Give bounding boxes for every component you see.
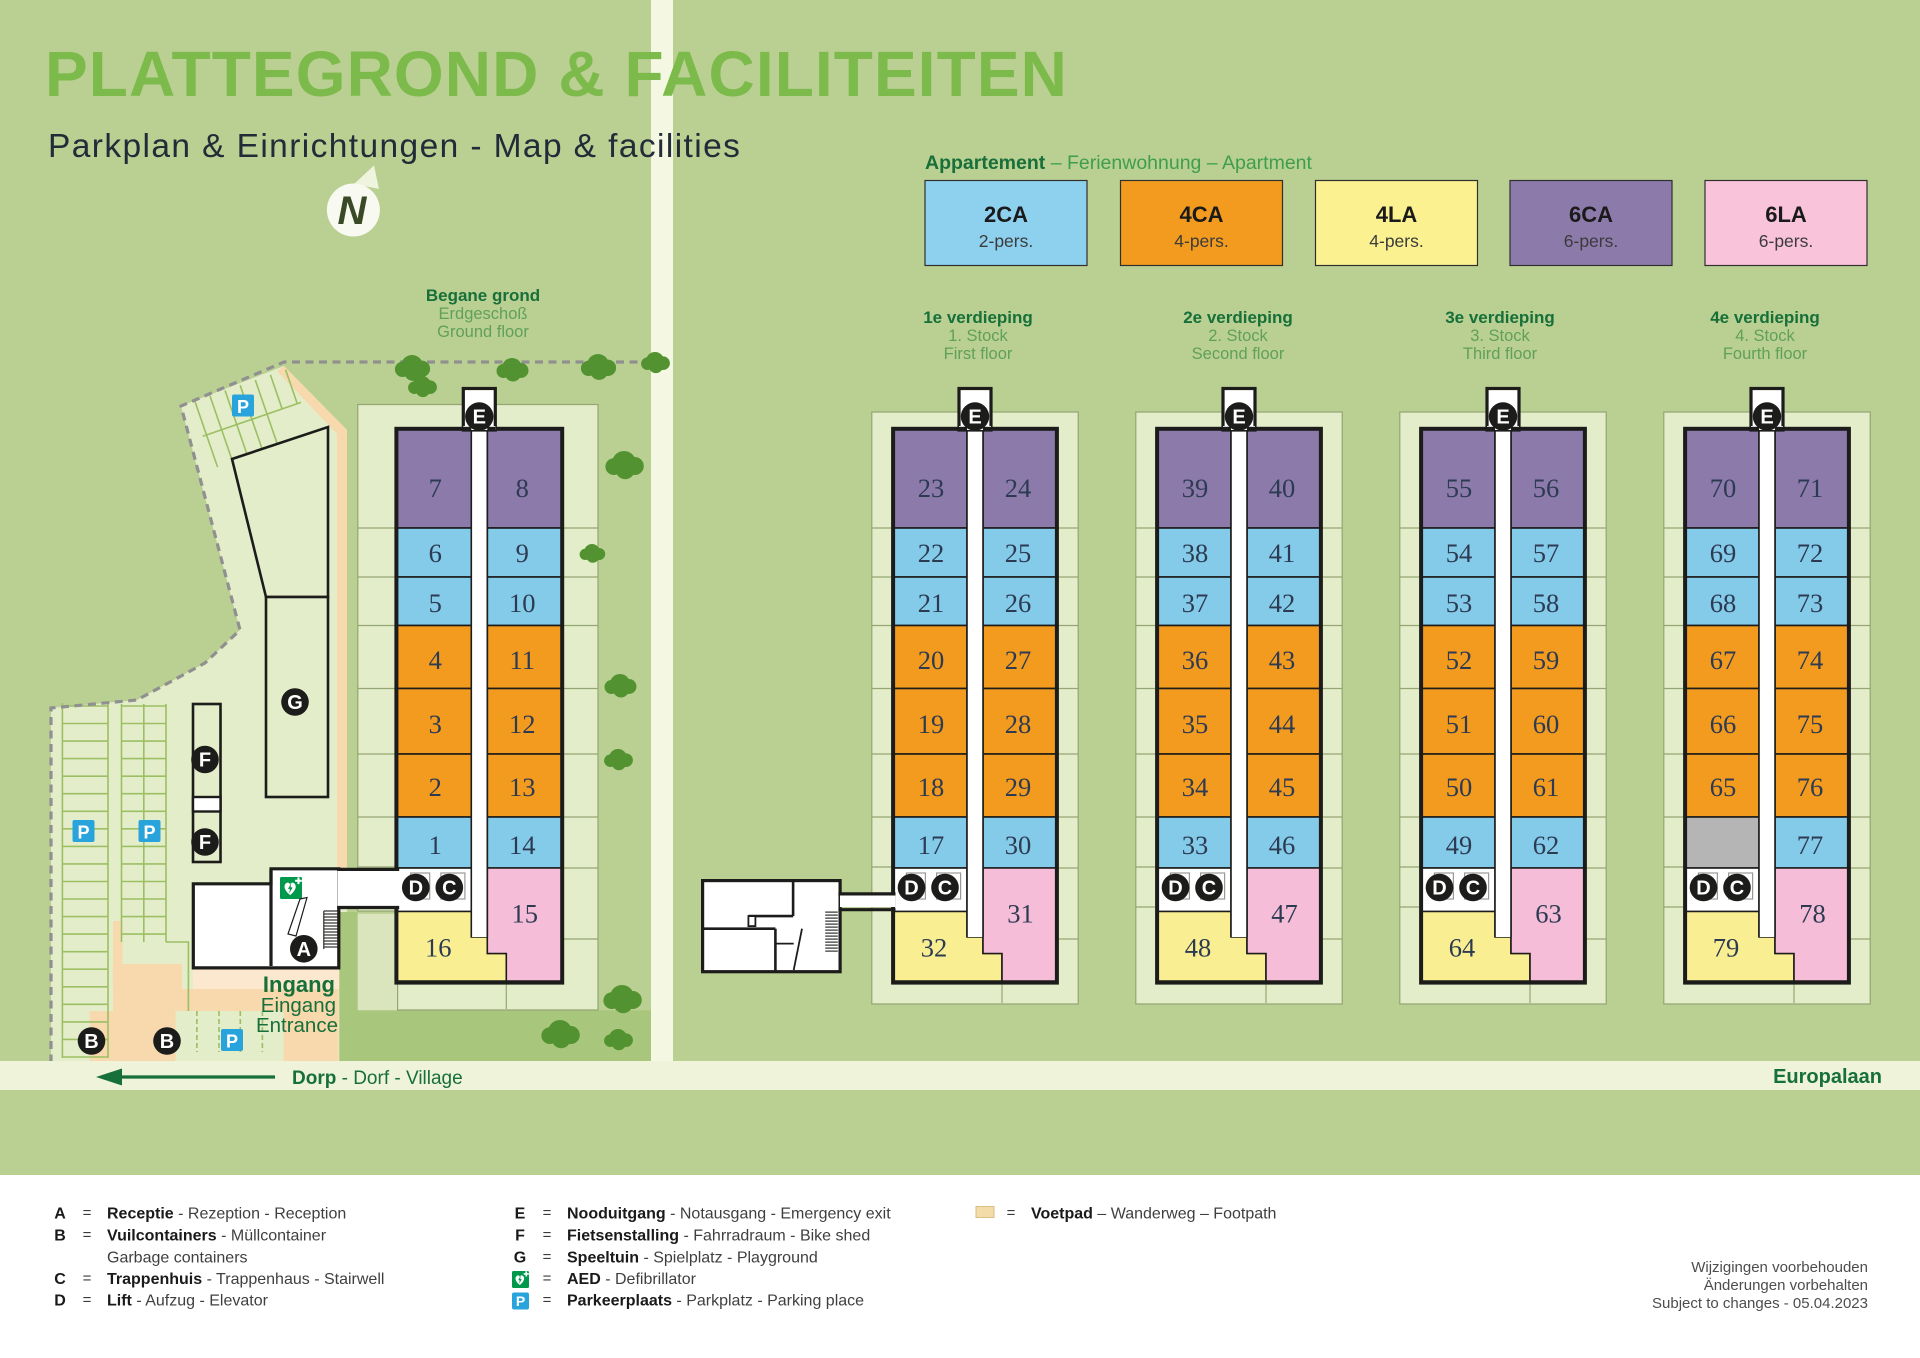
svg-text:3e verdieping: 3e verdieping (1445, 308, 1555, 327)
svg-text:Garbage containers: Garbage containers (107, 1250, 248, 1267)
svg-text:C: C (1730, 878, 1744, 900)
svg-text:75: 75 (1797, 709, 1824, 739)
svg-text:A: A (54, 1206, 66, 1223)
svg-text:E: E (1760, 407, 1773, 429)
svg-text:37: 37 (1182, 588, 1209, 618)
svg-text:47: 47 (1271, 899, 1298, 929)
svg-text:3: 3 (429, 709, 442, 739)
svg-text:Änderungen vorbehalten: Änderungen vorbehalten (1704, 1277, 1868, 1294)
svg-text:32: 32 (921, 933, 948, 963)
svg-text:2e verdieping: 2e verdieping (1183, 308, 1293, 327)
svg-text:2: 2 (429, 772, 442, 802)
svg-text:E: E (1496, 407, 1509, 429)
svg-text:G: G (514, 1250, 526, 1267)
svg-text:=: = (83, 1292, 92, 1309)
svg-text:P: P (516, 1293, 525, 1309)
svg-text:9: 9 (516, 538, 529, 568)
svg-text:17: 17 (918, 830, 945, 860)
svg-text:P: P (143, 822, 155, 842)
svg-text:D: D (1168, 878, 1182, 900)
svg-text:1e verdieping: 1e verdieping (923, 308, 1033, 327)
svg-text:B: B (84, 1031, 98, 1053)
svg-text:4e verdieping: 4e verdieping (1710, 308, 1820, 327)
svg-text:Third floor: Third floor (1463, 345, 1538, 363)
svg-text:7: 7 (429, 473, 442, 503)
svg-text:6-pers.: 6-pers. (1759, 231, 1813, 251)
svg-text:E: E (473, 407, 486, 429)
svg-text:39: 39 (1182, 473, 1209, 503)
svg-text:27: 27 (1005, 645, 1032, 675)
svg-text:C: C (54, 1271, 66, 1288)
svg-text:65: 65 (1710, 772, 1737, 802)
svg-text:Nooduitgang - Notausgang - Eme: Nooduitgang - Notausgang - Emergency exi… (567, 1206, 891, 1223)
svg-text:54: 54 (1446, 538, 1473, 568)
svg-text:48: 48 (1185, 933, 1212, 963)
svg-text:D: D (1696, 878, 1710, 900)
svg-text:1. Stock: 1. Stock (948, 327, 1008, 345)
svg-text:74: 74 (1797, 645, 1824, 675)
svg-text:30: 30 (1005, 830, 1032, 860)
svg-text:4-pers.: 4-pers. (1174, 231, 1228, 251)
svg-text:46: 46 (1269, 830, 1296, 860)
svg-text:3. Stock: 3. Stock (1470, 327, 1530, 345)
svg-text:P: P (226, 1031, 238, 1051)
svg-text:11: 11 (510, 645, 536, 675)
svg-text:18: 18 (918, 772, 945, 802)
svg-text:53: 53 (1446, 588, 1473, 618)
svg-text:Begane grond: Begane grond (426, 286, 540, 305)
svg-text:77: 77 (1797, 830, 1824, 860)
svg-text:4: 4 (429, 645, 442, 675)
svg-text:1: 1 (429, 830, 442, 860)
svg-text:F: F (515, 1228, 525, 1245)
svg-text:4LA: 4LA (1376, 202, 1418, 227)
svg-text:First floor: First floor (944, 345, 1013, 363)
svg-text:Lift - Aufzug - Elevator: Lift - Aufzug - Elevator (107, 1293, 269, 1310)
svg-text:D: D (1432, 878, 1446, 900)
svg-text:68: 68 (1710, 588, 1737, 618)
svg-text:19: 19 (918, 709, 945, 739)
svg-text:P: P (77, 822, 89, 842)
svg-text:36: 36 (1182, 645, 1209, 675)
svg-text:14: 14 (509, 830, 536, 860)
svg-text:15: 15 (512, 899, 539, 929)
svg-text:Fourth floor: Fourth floor (1723, 345, 1808, 363)
svg-text:=: = (83, 1270, 92, 1287)
svg-text:Parkplan & Einrichtungen - Ma: Parkplan & Einrichtungen - Map & facilit… (48, 128, 741, 165)
svg-text:E: E (515, 1206, 526, 1223)
svg-text:C: C (1466, 878, 1480, 900)
svg-text:28: 28 (1005, 709, 1032, 739)
svg-text:A: A (297, 939, 311, 961)
svg-text:21: 21 (918, 588, 945, 618)
svg-text:=: = (543, 1227, 552, 1244)
svg-text:40: 40 (1269, 473, 1296, 503)
svg-text:33: 33 (1182, 830, 1209, 860)
svg-text:42: 42 (1269, 588, 1296, 618)
svg-text:Second floor: Second floor (1192, 345, 1285, 363)
svg-text:Wijzigingen voorbehouden: Wijzigingen voorbehouden (1691, 1259, 1868, 1276)
svg-text:G: G (287, 692, 303, 714)
svg-text:64: 64 (1449, 933, 1476, 963)
svg-text:4CA: 4CA (1179, 202, 1223, 227)
svg-text:31: 31 (1007, 899, 1034, 929)
svg-text:57: 57 (1533, 538, 1560, 568)
svg-text:25: 25 (1005, 538, 1032, 568)
svg-text:2CA: 2CA (984, 202, 1028, 227)
svg-text:35: 35 (1182, 709, 1209, 739)
svg-text:56: 56 (1533, 473, 1560, 503)
svg-text:76: 76 (1797, 772, 1824, 802)
svg-text:26: 26 (1005, 588, 1032, 618)
svg-text:72: 72 (1797, 538, 1824, 568)
svg-text:71: 71 (1797, 473, 1824, 503)
svg-text:D: D (904, 878, 918, 900)
svg-text:Vuilcontainers - Müllcontainer: Vuilcontainers - Müllcontainer (107, 1228, 327, 1245)
svg-text:4. Stock: 4. Stock (1735, 327, 1795, 345)
svg-text:C: C (1202, 878, 1216, 900)
svg-text:Entrance: Entrance (256, 1014, 338, 1037)
svg-text:C: C (938, 878, 952, 900)
svg-text:43: 43 (1269, 645, 1296, 675)
svg-text:Europalaan: Europalaan (1773, 1066, 1882, 1088)
svg-text:20: 20 (918, 645, 945, 675)
svg-text:Subject to changes - 05.04.202: Subject to changes - 05.04.2023 (1652, 1295, 1868, 1312)
svg-text:B: B (54, 1228, 66, 1245)
svg-text:50: 50 (1446, 772, 1473, 802)
svg-text:=: = (543, 1270, 552, 1287)
svg-text:Ground floor: Ground floor (437, 323, 529, 341)
svg-text:PLATTEGROND & FACILITEITEN: PLATTEGROND & FACILITEITEN (45, 38, 1068, 110)
svg-text:34: 34 (1182, 772, 1209, 802)
svg-text:52: 52 (1446, 645, 1473, 675)
svg-text:23: 23 (918, 473, 945, 503)
svg-text:6-pers.: 6-pers. (1564, 231, 1618, 251)
svg-text:67: 67 (1710, 645, 1737, 675)
svg-text:D: D (54, 1293, 66, 1310)
svg-text:6: 6 (429, 538, 442, 568)
svg-text:Voetpad – Wanderweg – Footpath: Voetpad – Wanderweg – Footpath (1031, 1206, 1276, 1223)
svg-text:6CA: 6CA (1569, 202, 1613, 227)
svg-text:=: = (83, 1227, 92, 1244)
svg-text:51: 51 (1446, 709, 1473, 739)
svg-text:2. Stock: 2. Stock (1208, 327, 1268, 345)
svg-text:=: = (543, 1205, 552, 1222)
svg-text:Parkeerplaats - Parkplatz - Pa: Parkeerplaats - Parkplatz - Parking plac… (567, 1293, 864, 1310)
svg-text:58: 58 (1533, 588, 1560, 618)
svg-text:Trappenhuis - Trappenhaus - St: Trappenhuis - Trappenhaus - Stairwell (107, 1271, 384, 1288)
svg-text:AED - Defibrillator: AED - Defibrillator (567, 1271, 697, 1288)
svg-text:Dorp - Dorf - Village: Dorp - Dorf - Village (292, 1068, 463, 1089)
svg-text:E: E (968, 407, 981, 429)
svg-text:49: 49 (1446, 830, 1473, 860)
svg-text:12: 12 (509, 709, 536, 739)
svg-text:69: 69 (1710, 538, 1737, 568)
svg-text:D: D (409, 878, 423, 900)
svg-text:Receptie - Rezeption - Recepti: Receptie - Rezeption - Reception (107, 1206, 346, 1223)
svg-text:6LA: 6LA (1765, 202, 1807, 227)
svg-text:13: 13 (509, 772, 536, 802)
svg-text:Speeltuin - Spielplatz - Playg: Speeltuin - Spielplatz - Playground (567, 1250, 818, 1267)
svg-text:63: 63 (1535, 899, 1562, 929)
svg-text:=: = (83, 1205, 92, 1222)
svg-text:70: 70 (1710, 473, 1737, 503)
svg-text:P: P (237, 397, 249, 417)
svg-text:10: 10 (509, 588, 536, 618)
svg-text:Fietsenstalling - Fahrradraum: Fietsenstalling - Fahrradraum - Bike she… (567, 1228, 870, 1245)
svg-text:=: = (1007, 1205, 1016, 1222)
svg-text:59: 59 (1533, 645, 1560, 675)
svg-text:41: 41 (1269, 538, 1296, 568)
svg-text:B: B (160, 1031, 174, 1053)
svg-text:73: 73 (1797, 588, 1824, 618)
svg-text:62: 62 (1533, 830, 1560, 860)
svg-text:4-pers.: 4-pers. (1369, 231, 1423, 251)
svg-text:60: 60 (1533, 709, 1560, 739)
svg-text:5: 5 (429, 588, 442, 618)
svg-text:=: = (543, 1292, 552, 1309)
svg-text:Erdgeschoß: Erdgeschoß (439, 305, 528, 323)
svg-text:Appartement – Ferienwohnung –: Appartement – Ferienwohnung – Apartment (925, 152, 1313, 174)
svg-text:N: N (338, 189, 368, 233)
svg-text:29: 29 (1005, 772, 1032, 802)
svg-text:F: F (199, 832, 211, 854)
svg-text:2-pers.: 2-pers. (979, 231, 1033, 251)
svg-text:22: 22 (918, 538, 945, 568)
svg-text:66: 66 (1710, 709, 1737, 739)
svg-text:61: 61 (1533, 772, 1560, 802)
svg-text:55: 55 (1446, 473, 1473, 503)
svg-text:C: C (442, 878, 456, 900)
svg-text:24: 24 (1005, 473, 1032, 503)
svg-text:44: 44 (1269, 709, 1296, 739)
svg-text:=: = (543, 1249, 552, 1266)
svg-text:79: 79 (1713, 933, 1740, 963)
svg-text:16: 16 (425, 933, 452, 963)
svg-text:8: 8 (516, 473, 529, 503)
svg-text:45: 45 (1269, 772, 1296, 802)
svg-text:E: E (1232, 407, 1245, 429)
svg-text:38: 38 (1182, 538, 1209, 568)
svg-text:78: 78 (1799, 899, 1826, 929)
svg-text:F: F (199, 750, 211, 772)
